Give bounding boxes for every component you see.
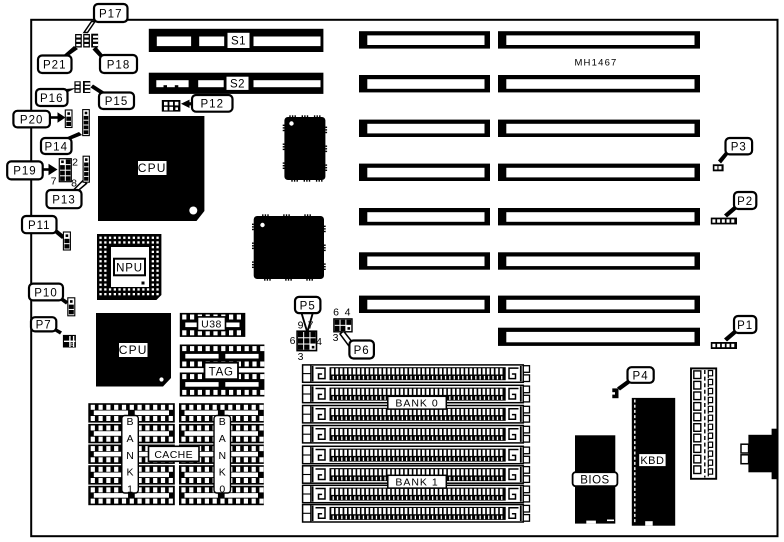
svg-text:P17: P17 — [99, 8, 122, 20]
svg-text:TAG: TAG — [209, 367, 234, 379]
svg-text:BANK 1: BANK 1 — [395, 477, 438, 489]
svg-text:P3: P3 — [731, 142, 747, 154]
svg-text:BANK 0: BANK 0 — [395, 398, 438, 410]
svg-text:P11: P11 — [28, 220, 51, 232]
svg-text:P18: P18 — [107, 59, 130, 71]
svg-text:P21: P21 — [43, 60, 66, 72]
svg-text:3: 3 — [333, 332, 339, 344]
svg-text:P1: P1 — [737, 320, 753, 332]
svg-text:0: 0 — [219, 484, 225, 496]
svg-text:B: B — [219, 416, 226, 428]
svg-text:P5: P5 — [300, 300, 316, 312]
svg-text:N: N — [218, 450, 226, 462]
svg-text:8: 8 — [71, 178, 77, 190]
svg-text:9: 9 — [298, 320, 304, 332]
svg-text:A: A — [219, 433, 226, 445]
svg-text:7: 7 — [308, 320, 314, 332]
svg-text:U38: U38 — [201, 319, 222, 331]
svg-text:P16: P16 — [40, 93, 63, 105]
svg-text:S1: S1 — [231, 36, 246, 48]
svg-text:CPU: CPU — [119, 343, 148, 357]
svg-text:P7: P7 — [36, 320, 52, 332]
svg-text:P15: P15 — [105, 96, 128, 108]
svg-text:P10: P10 — [34, 287, 57, 299]
svg-text:6: 6 — [333, 307, 339, 319]
svg-text:7: 7 — [51, 176, 57, 188]
svg-text:P4: P4 — [633, 370, 649, 382]
svg-text:1: 1 — [127, 484, 133, 496]
svg-text:P20: P20 — [20, 114, 43, 126]
svg-text:6: 6 — [290, 335, 296, 347]
svg-text:4: 4 — [345, 307, 351, 319]
svg-text:S2: S2 — [230, 79, 245, 91]
svg-text:P12: P12 — [201, 99, 224, 111]
svg-text:CPU: CPU — [138, 161, 167, 175]
svg-text:A: A — [127, 433, 134, 445]
svg-text:CACHE: CACHE — [154, 449, 193, 461]
svg-text:3: 3 — [298, 351, 304, 363]
svg-text:NPU: NPU — [116, 263, 143, 275]
svg-text:N: N — [126, 450, 134, 462]
svg-text:P2: P2 — [737, 196, 753, 208]
svg-text:P19: P19 — [13, 166, 36, 178]
svg-text:P14: P14 — [45, 141, 68, 153]
svg-text:BIOS: BIOS — [580, 474, 609, 486]
svg-text:4: 4 — [316, 336, 322, 348]
svg-text:KBD: KBD — [640, 455, 664, 467]
svg-text:2: 2 — [72, 157, 78, 169]
svg-text:P13: P13 — [52, 194, 75, 206]
svg-text:P6: P6 — [354, 345, 370, 357]
svg-text:K: K — [127, 467, 134, 479]
svg-text:MH1467: MH1467 — [574, 58, 617, 69]
svg-text:B: B — [127, 416, 134, 428]
svg-text:K: K — [219, 467, 226, 479]
